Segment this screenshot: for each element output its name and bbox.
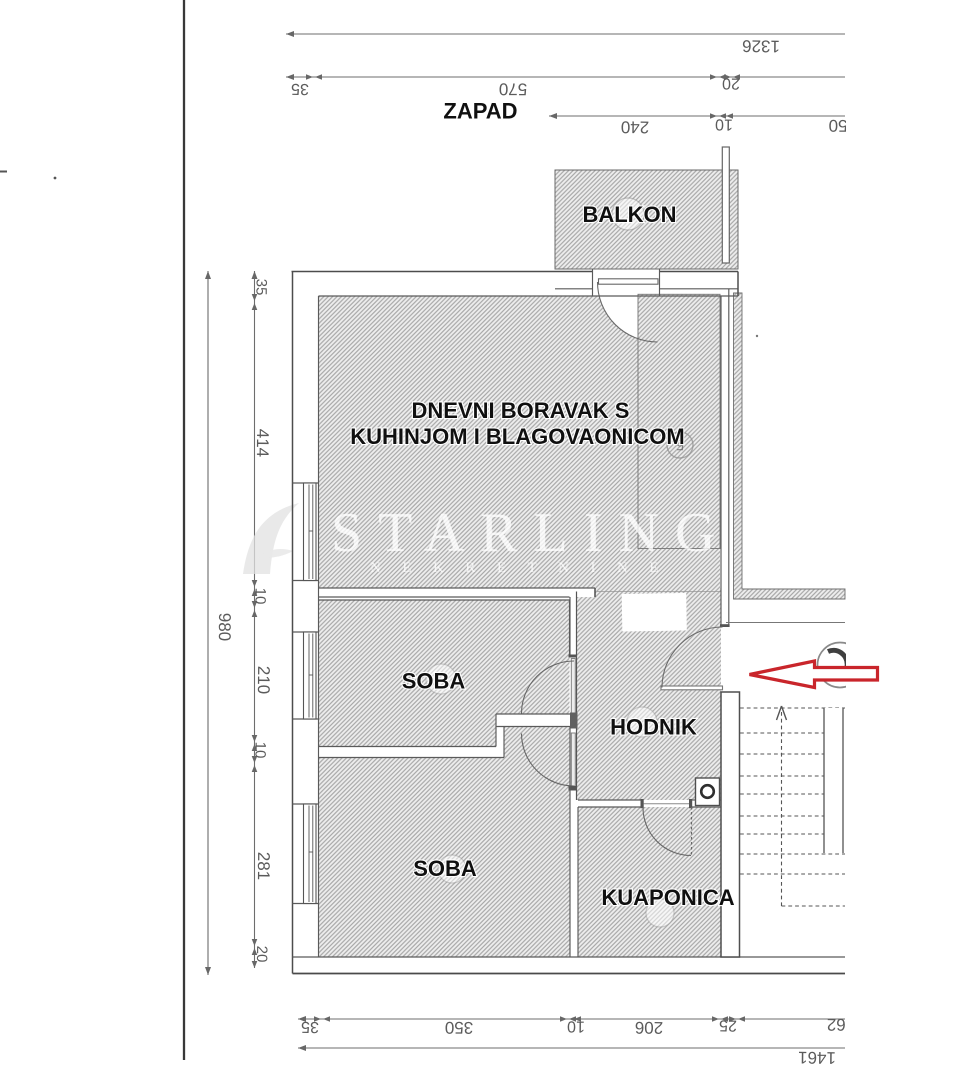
- svg-text:206: 206: [635, 1018, 664, 1037]
- svg-text:SOBA: SOBA: [413, 856, 477, 881]
- svg-text:25: 25: [719, 1016, 737, 1033]
- svg-text:10: 10: [567, 1017, 585, 1034]
- svg-text:20: 20: [722, 74, 740, 91]
- svg-text:STARLING: STARLING: [331, 502, 731, 564]
- svg-text:570: 570: [499, 79, 528, 98]
- svg-text:20: 20: [253, 946, 270, 963]
- svg-text:KUHINJOM I BLAGOVAONICOM: KUHINJOM I BLAGOVAONICOM: [350, 424, 684, 449]
- svg-text:240: 240: [621, 117, 650, 136]
- svg-text:10: 10: [251, 742, 268, 759]
- svg-text:DNEVNI BORAVAK S: DNEVNI BORAVAK S: [412, 398, 630, 423]
- svg-text:1326: 1326: [742, 36, 780, 55]
- svg-text:KUAPONICA: KUAPONICA: [601, 885, 734, 910]
- svg-text:1461: 1461: [798, 1048, 836, 1067]
- svg-text:35: 35: [291, 80, 309, 97]
- svg-text:NEKRETNINE: NEKRETNINE: [370, 560, 680, 576]
- svg-text:414: 414: [253, 429, 272, 458]
- svg-text:10: 10: [715, 115, 733, 132]
- svg-text:35: 35: [301, 1018, 319, 1035]
- svg-text:350: 350: [445, 1018, 474, 1037]
- svg-text:10: 10: [251, 588, 268, 605]
- svg-text:SOBA: SOBA: [402, 669, 466, 694]
- svg-text:ZAPAD: ZAPAD: [443, 99, 517, 124]
- svg-text:HODNIK: HODNIK: [610, 715, 697, 740]
- svg-text:210: 210: [254, 666, 273, 695]
- svg-text:50: 50: [828, 116, 847, 135]
- svg-text:980: 980: [215, 613, 234, 642]
- svg-text:281: 281: [254, 852, 273, 881]
- svg-text:BALKON: BALKON: [582, 202, 676, 227]
- svg-text:35: 35: [252, 279, 269, 296]
